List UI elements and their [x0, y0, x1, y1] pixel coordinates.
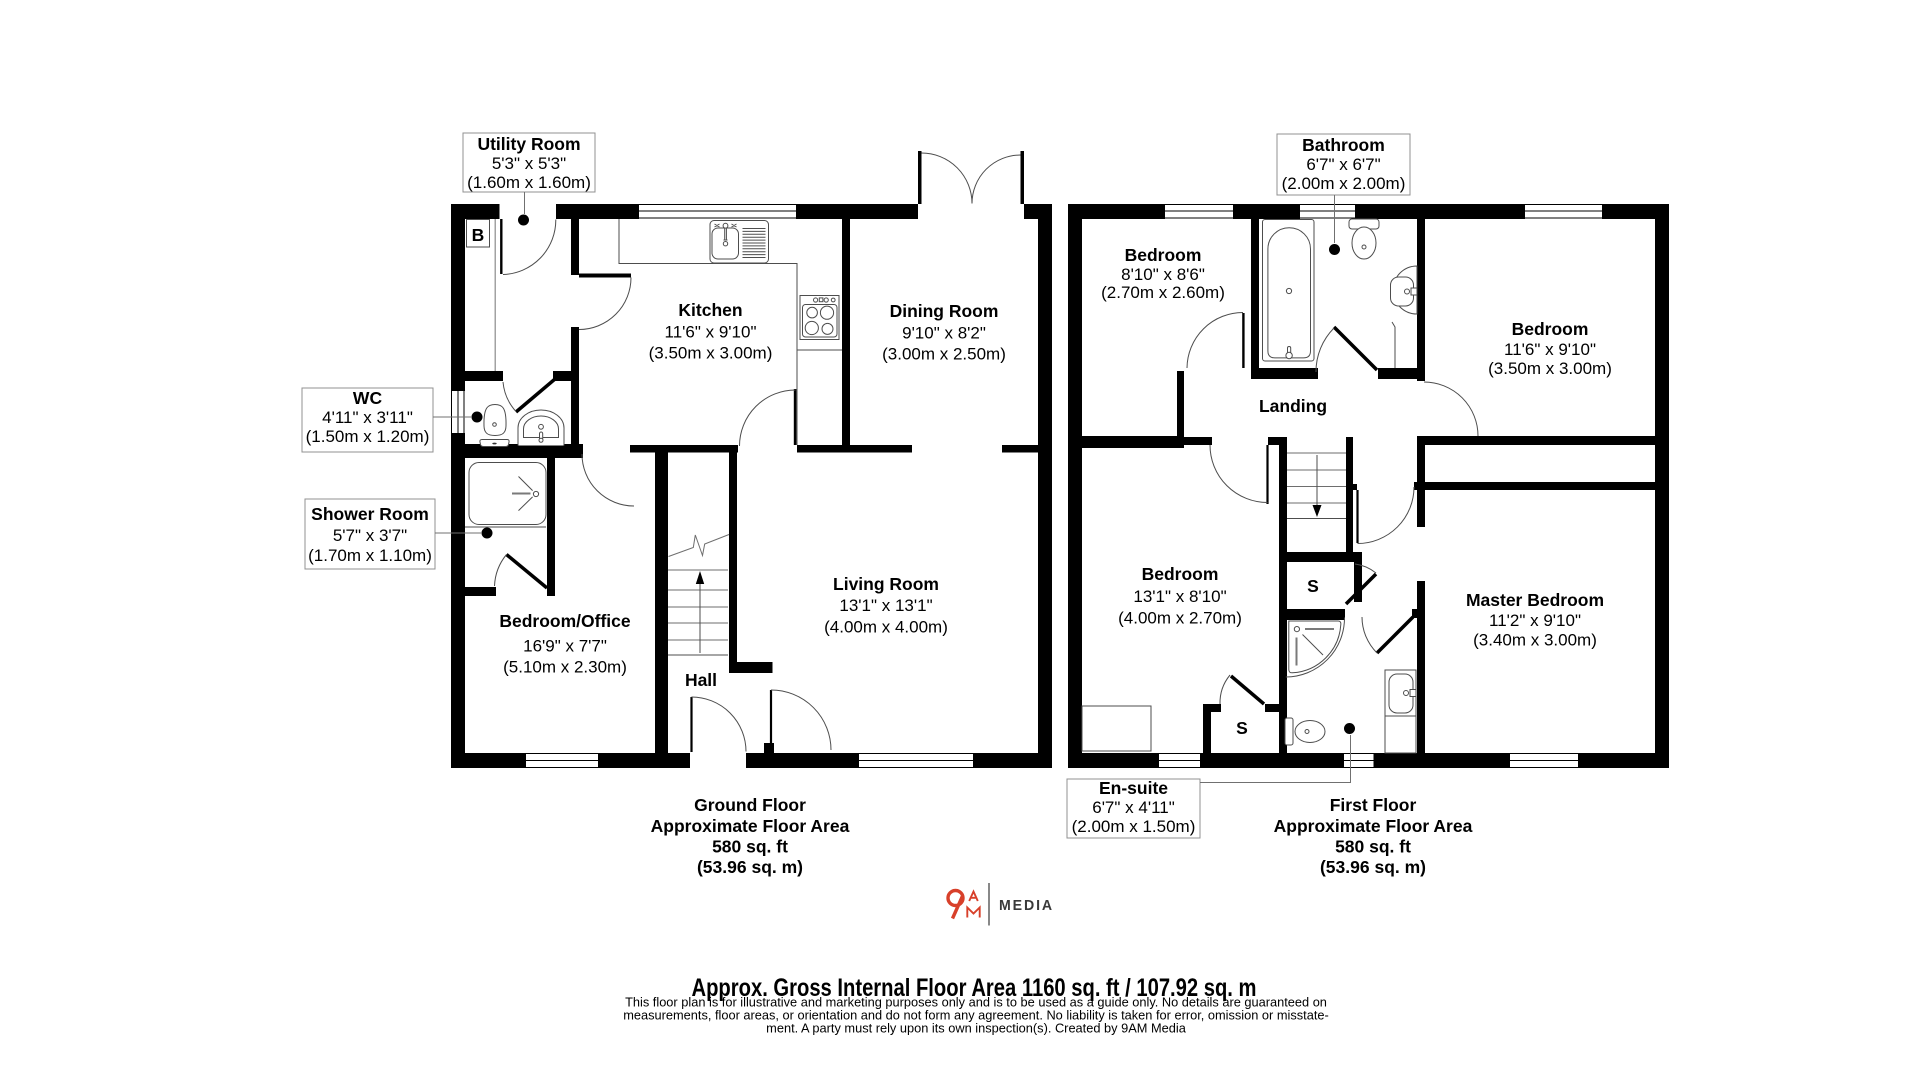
svg-text:9'10" x 8'2": 9'10" x 8'2" — [902, 324, 986, 343]
svg-text:13'1" x 13'1": 13'1" x 13'1" — [839, 596, 932, 615]
svg-text:6'7" x 4'11": 6'7" x 4'11" — [1092, 798, 1175, 817]
svg-text:5'7" x 3'7": 5'7" x 3'7" — [333, 526, 407, 545]
svg-text:(1.70m x 1.10m): (1.70m x 1.10m) — [308, 546, 432, 565]
svg-text:Living Room: Living Room — [833, 574, 939, 594]
svg-text:(3.40m x 3.00m): (3.40m x 3.00m) — [1473, 631, 1597, 650]
svg-text:(53.96 sq. m): (53.96 sq. m) — [697, 857, 803, 877]
svg-text:8'10" x 8'6": 8'10" x 8'6" — [1121, 265, 1205, 284]
svg-text:Kitchen: Kitchen — [678, 300, 742, 320]
svg-text:11'6" x 9'10": 11'6" x 9'10" — [665, 323, 757, 342]
svg-text:5'3" x 5'3": 5'3" x 5'3" — [492, 154, 566, 173]
svg-text:580 sq. ft: 580 sq. ft — [712, 837, 788, 857]
svg-text:11'2" x 9'10": 11'2" x 9'10" — [1489, 611, 1581, 630]
svg-text:Hall: Hall — [685, 670, 717, 690]
svg-text:(3.50m x 3.00m): (3.50m x 3.00m) — [649, 344, 773, 363]
svg-text:S: S — [1236, 718, 1248, 738]
svg-text:S: S — [1307, 576, 1319, 596]
svg-text:Ground Floor: Ground Floor — [694, 795, 806, 815]
svg-text:6'7" x 6'7": 6'7" x 6'7" — [1306, 155, 1380, 174]
svg-text:(1.50m x 1.20m): (1.50m x 1.20m) — [306, 427, 430, 446]
svg-text:Approximate Floor Area: Approximate Floor Area — [651, 816, 850, 836]
svg-text:Bedroom: Bedroom — [1512, 319, 1589, 339]
svg-text:(53.96 sq. m): (53.96 sq. m) — [1320, 857, 1426, 877]
svg-text:Bathroom: Bathroom — [1302, 135, 1385, 155]
svg-text:580 sq. ft: 580 sq. ft — [1335, 837, 1411, 857]
svg-text:Shower Room: Shower Room — [311, 504, 429, 524]
svg-text:(4.00m x 4.00m): (4.00m x 4.00m) — [824, 618, 948, 637]
svg-text:16'9" x 7'7": 16'9" x 7'7" — [523, 637, 607, 656]
svg-text:(2.00m x 1.50m): (2.00m x 1.50m) — [1072, 817, 1196, 836]
svg-text:(2.70m x 2.60m): (2.70m x 2.60m) — [1101, 283, 1225, 302]
svg-text:Landing: Landing — [1259, 396, 1327, 416]
svg-text:(1.60m x 1.60m): (1.60m x 1.60m) — [467, 173, 591, 192]
svg-text:(3.50m x 3.00m): (3.50m x 3.00m) — [1488, 359, 1612, 378]
svg-text:Approximate Floor Area: Approximate Floor Area — [1274, 816, 1473, 836]
svg-text:Bedroom/Office: Bedroom/Office — [499, 611, 631, 631]
svg-text:MEDIA: MEDIA — [999, 897, 1054, 914]
svg-text:Dining Room: Dining Room — [890, 301, 999, 321]
svg-text:(5.10m x 2.30m): (5.10m x 2.30m) — [503, 658, 627, 677]
svg-text:13'1" x 8'10": 13'1" x 8'10" — [1133, 587, 1226, 606]
svg-text:En-suite: En-suite — [1099, 778, 1168, 798]
svg-text:Utility Room: Utility Room — [477, 134, 580, 154]
svg-text:Bedroom: Bedroom — [1142, 564, 1219, 584]
svg-text:(3.00m x 2.50m): (3.00m x 2.50m) — [882, 345, 1006, 364]
svg-text:(2.00m x 2.00m): (2.00m x 2.00m) — [1282, 174, 1406, 193]
svg-text:WC: WC — [353, 388, 383, 408]
svg-text:B: B — [472, 225, 485, 245]
svg-text:ment. A party must rely upon i: ment. A party must rely upon its own ins… — [766, 1021, 1187, 1036]
svg-text:Bedroom: Bedroom — [1125, 245, 1202, 265]
svg-text:First Floor: First Floor — [1330, 795, 1417, 815]
svg-text:11'6" x 9'10": 11'6" x 9'10" — [1504, 340, 1596, 359]
svg-text:4'11" x 3'11": 4'11" x 3'11" — [322, 408, 413, 427]
svg-text:(4.00m x 2.70m): (4.00m x 2.70m) — [1118, 609, 1242, 628]
svg-text:Master Bedroom: Master Bedroom — [1466, 590, 1604, 610]
